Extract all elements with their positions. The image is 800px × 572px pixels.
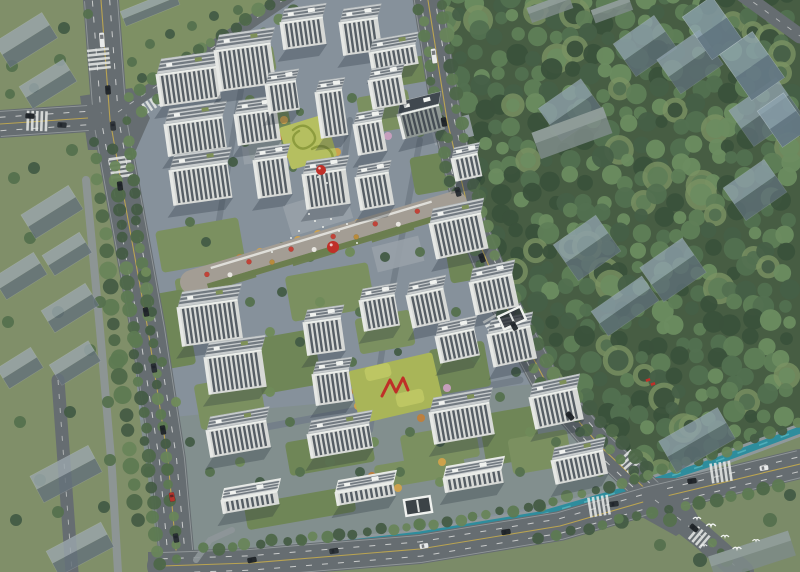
scene-canvas bbox=[0, 0, 800, 572]
tree bbox=[443, 384, 451, 392]
tree bbox=[265, 327, 275, 337]
umbrella bbox=[269, 260, 274, 265]
red-balloon-sculpture bbox=[316, 165, 326, 175]
bus bbox=[99, 32, 105, 47]
tree bbox=[8, 172, 20, 184]
pedestrian bbox=[308, 213, 310, 215]
tree bbox=[277, 287, 287, 297]
pedestrian bbox=[290, 237, 292, 239]
tree bbox=[394, 484, 402, 492]
tree bbox=[102, 396, 114, 408]
tree bbox=[245, 297, 255, 307]
pedestrian bbox=[346, 223, 348, 225]
pedestrian bbox=[271, 251, 273, 253]
tree bbox=[58, 22, 70, 34]
tree bbox=[66, 144, 78, 156]
tree bbox=[763, 513, 777, 527]
umbrella bbox=[288, 247, 293, 252]
tree bbox=[185, 217, 195, 227]
tree bbox=[415, 247, 425, 257]
tree bbox=[515, 467, 525, 477]
tree bbox=[394, 348, 402, 356]
pedestrian bbox=[314, 220, 316, 222]
tree bbox=[83, 9, 93, 19]
tree bbox=[347, 93, 357, 103]
umbrella bbox=[246, 259, 251, 264]
tree bbox=[2, 316, 14, 328]
tree bbox=[285, 417, 295, 427]
car bbox=[687, 478, 697, 484]
tree bbox=[417, 414, 425, 422]
car bbox=[501, 529, 511, 536]
tree bbox=[233, 5, 243, 15]
umbrella bbox=[396, 222, 401, 227]
tree bbox=[185, 437, 195, 447]
umbrella bbox=[312, 247, 317, 252]
tree bbox=[315, 297, 325, 307]
umbrella bbox=[354, 234, 359, 239]
tree bbox=[438, 458, 446, 466]
car bbox=[110, 121, 116, 130]
tree bbox=[14, 416, 26, 428]
tree bbox=[98, 501, 110, 513]
tree bbox=[141, 267, 151, 277]
car bbox=[25, 113, 34, 119]
tree bbox=[127, 57, 137, 67]
tree bbox=[384, 132, 392, 140]
tree bbox=[295, 467, 305, 477]
tree bbox=[52, 506, 64, 518]
tree bbox=[157, 357, 167, 367]
tree bbox=[663, 513, 677, 527]
umbrella bbox=[415, 209, 420, 214]
umbrella bbox=[227, 272, 232, 277]
tree bbox=[145, 39, 155, 49]
tree bbox=[10, 514, 22, 526]
umbrella bbox=[204, 272, 209, 277]
tree bbox=[5, 89, 15, 99]
tree bbox=[495, 392, 505, 402]
car bbox=[57, 122, 66, 128]
pedestrian bbox=[322, 226, 324, 228]
car bbox=[609, 501, 619, 507]
tree bbox=[171, 397, 181, 407]
car bbox=[329, 548, 339, 555]
tree bbox=[451, 307, 461, 317]
pedestrian bbox=[317, 176, 319, 178]
aerial-masterplan-render bbox=[0, 0, 800, 572]
car bbox=[117, 181, 123, 191]
tree bbox=[209, 11, 219, 21]
tree bbox=[28, 162, 40, 174]
car bbox=[419, 543, 429, 550]
tree bbox=[355, 467, 365, 477]
tree bbox=[228, 157, 238, 167]
umbrella bbox=[331, 234, 336, 239]
tree bbox=[654, 539, 666, 551]
car bbox=[759, 465, 769, 471]
tree bbox=[64, 406, 76, 418]
red-balloon-sculpture bbox=[327, 241, 339, 253]
pedestrian bbox=[298, 230, 300, 232]
tree bbox=[380, 252, 390, 262]
tree bbox=[443, 133, 453, 143]
tree bbox=[89, 137, 99, 147]
tree bbox=[345, 247, 355, 257]
tree bbox=[201, 237, 211, 247]
tree bbox=[104, 454, 116, 466]
pedestrian bbox=[338, 230, 340, 232]
tree bbox=[551, 437, 561, 447]
tree bbox=[405, 427, 415, 437]
entrance-gate bbox=[404, 496, 432, 516]
tree bbox=[137, 73, 147, 83]
pedestrian bbox=[326, 182, 328, 184]
tree bbox=[395, 467, 405, 477]
tree bbox=[525, 427, 535, 437]
road bbox=[0, 106, 89, 137]
tree bbox=[784, 489, 796, 501]
tree bbox=[265, 387, 275, 397]
tree bbox=[693, 553, 707, 567]
pedestrian bbox=[356, 242, 358, 244]
tree bbox=[187, 21, 197, 31]
tree bbox=[295, 337, 305, 347]
pedestrian bbox=[330, 218, 332, 220]
umbrella bbox=[373, 221, 378, 226]
car bbox=[105, 85, 111, 94]
tree bbox=[165, 29, 175, 39]
